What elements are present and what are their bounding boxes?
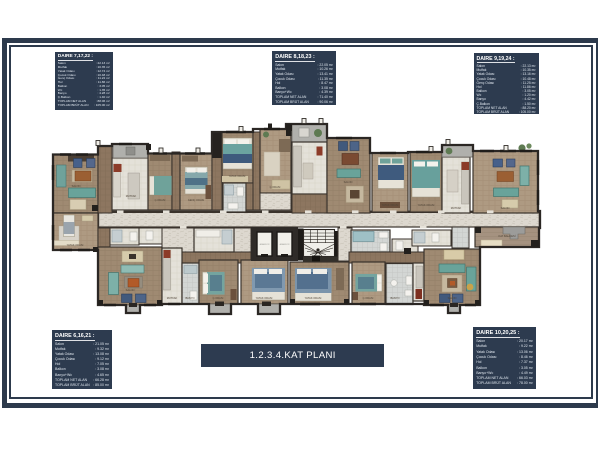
svg-text:SALON: SALON: [126, 288, 135, 292]
svg-text:MUTFAK: MUTFAK: [126, 194, 137, 198]
svg-text:Ç.ODASI: Ç.ODASI: [363, 296, 374, 300]
svg-text:MUTFAK: MUTFAK: [451, 206, 462, 210]
svg-text:YATAK ODASI: YATAK ODASI: [229, 174, 246, 178]
svg-text:YATAK ODASI: YATAK ODASI: [305, 296, 322, 300]
svg-text:BANYO: BANYO: [390, 296, 399, 300]
svg-text:BANYO: BANYO: [185, 296, 194, 300]
svg-text:SALON: SALON: [72, 184, 81, 188]
svg-text:ASANSÖR: ASANSÖR: [260, 243, 270, 246]
svg-text:ASANSÖR: ASANSÖR: [280, 243, 290, 246]
svg-text:Ç.ODASI: Ç.ODASI: [213, 296, 224, 300]
svg-text:SALON: SALON: [501, 206, 510, 210]
svg-text:YATAK ODASI: YATAK ODASI: [382, 203, 399, 207]
svg-text:YATAK ODASI: YATAK ODASI: [256, 296, 273, 300]
svg-text:SALON: SALON: [448, 296, 457, 300]
svg-text:Ç.ODASI: Ç.ODASI: [155, 198, 166, 202]
svg-text:MUTFAK: MUTFAK: [167, 296, 178, 300]
svg-text:SALON: SALON: [344, 180, 353, 184]
svg-text:YATAK ODASI: YATAK ODASI: [418, 203, 435, 207]
svg-text:Ç.ODASI: Ç.ODASI: [270, 185, 281, 189]
svg-text:GENÇ ODASI: GENÇ ODASI: [188, 198, 205, 202]
svg-text:YATAK ODASI: YATAK ODASI: [67, 243, 84, 247]
